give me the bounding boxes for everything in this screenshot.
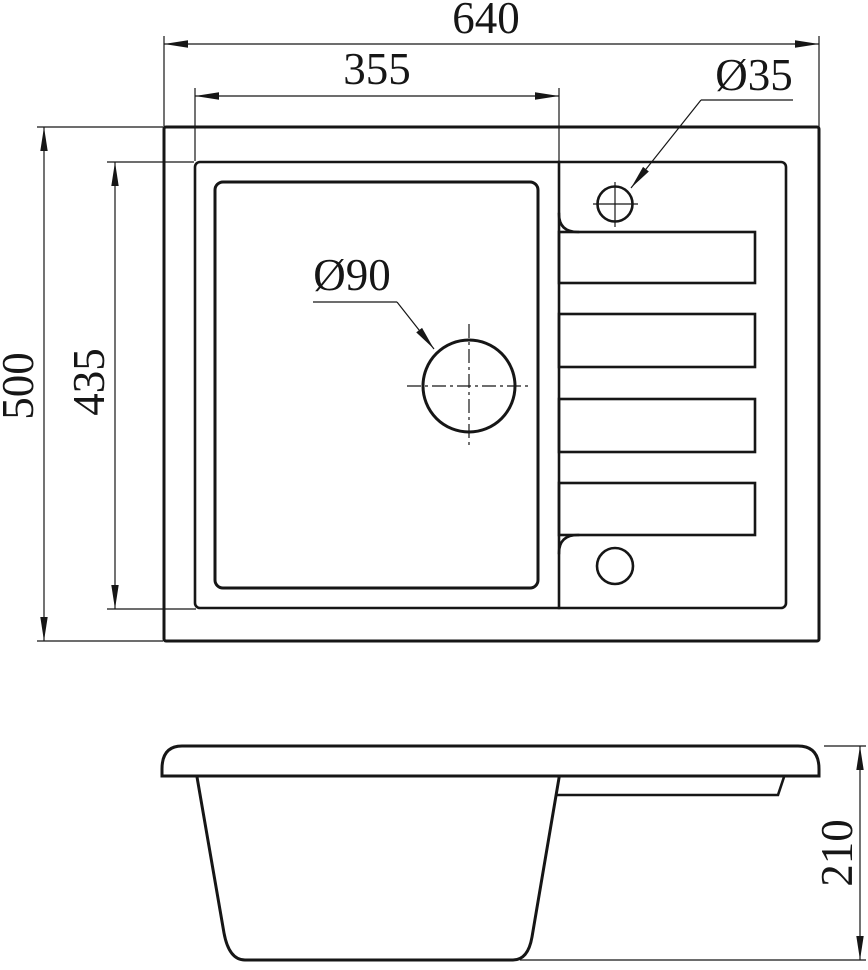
drainboard-top-fillet [559,214,578,232]
rim-profile [162,746,819,776]
leader-line [631,100,701,188]
drainboard-profile [558,777,784,795]
bowl [215,182,538,588]
top-view: 640 355 500 435 [0,0,819,641]
dim-bowl-area-width-label: 355 [343,44,411,94]
main-drain-hole [407,324,532,449]
drainboard-bottom-fillet [559,535,578,553]
outer-rim [164,127,819,641]
drainboard-ridge-2 [559,314,755,367]
dim-overall-width-label: 640 [452,0,520,43]
drainboard-ridge-4 [559,483,755,535]
bowl-profile [197,777,559,960]
sink-technical-drawing: 640 355 500 435 [0,0,868,970]
leader-line [397,302,434,349]
main-drain-label: Ø90 [313,250,391,300]
dim-overall-height-label: 210 [812,819,862,887]
side-view: 210 [162,746,866,960]
faucet-hole-label: Ø35 [715,50,793,100]
dim-overall-depth-label: 500 [0,352,43,420]
leader-faucet-hole: Ø35 [631,50,793,188]
dim-inner-depth-label: 435 [64,348,114,416]
faucet-hole [593,182,638,227]
dim-overall-height: 210 [520,746,866,960]
drainboard-ridge-3 [559,399,755,452]
drainboard-ridges [559,232,755,535]
drawing-sheet: 640 355 500 435 [0,0,868,970]
leader-main-drain: Ø90 [313,250,434,349]
dim-bowl-area-width: 355 [195,44,559,161]
inner-rim [195,162,786,608]
drainboard-drain-hole [597,548,633,584]
drainboard-ridge-1 [559,232,755,283]
dim-inner-depth: 435 [64,162,196,609]
